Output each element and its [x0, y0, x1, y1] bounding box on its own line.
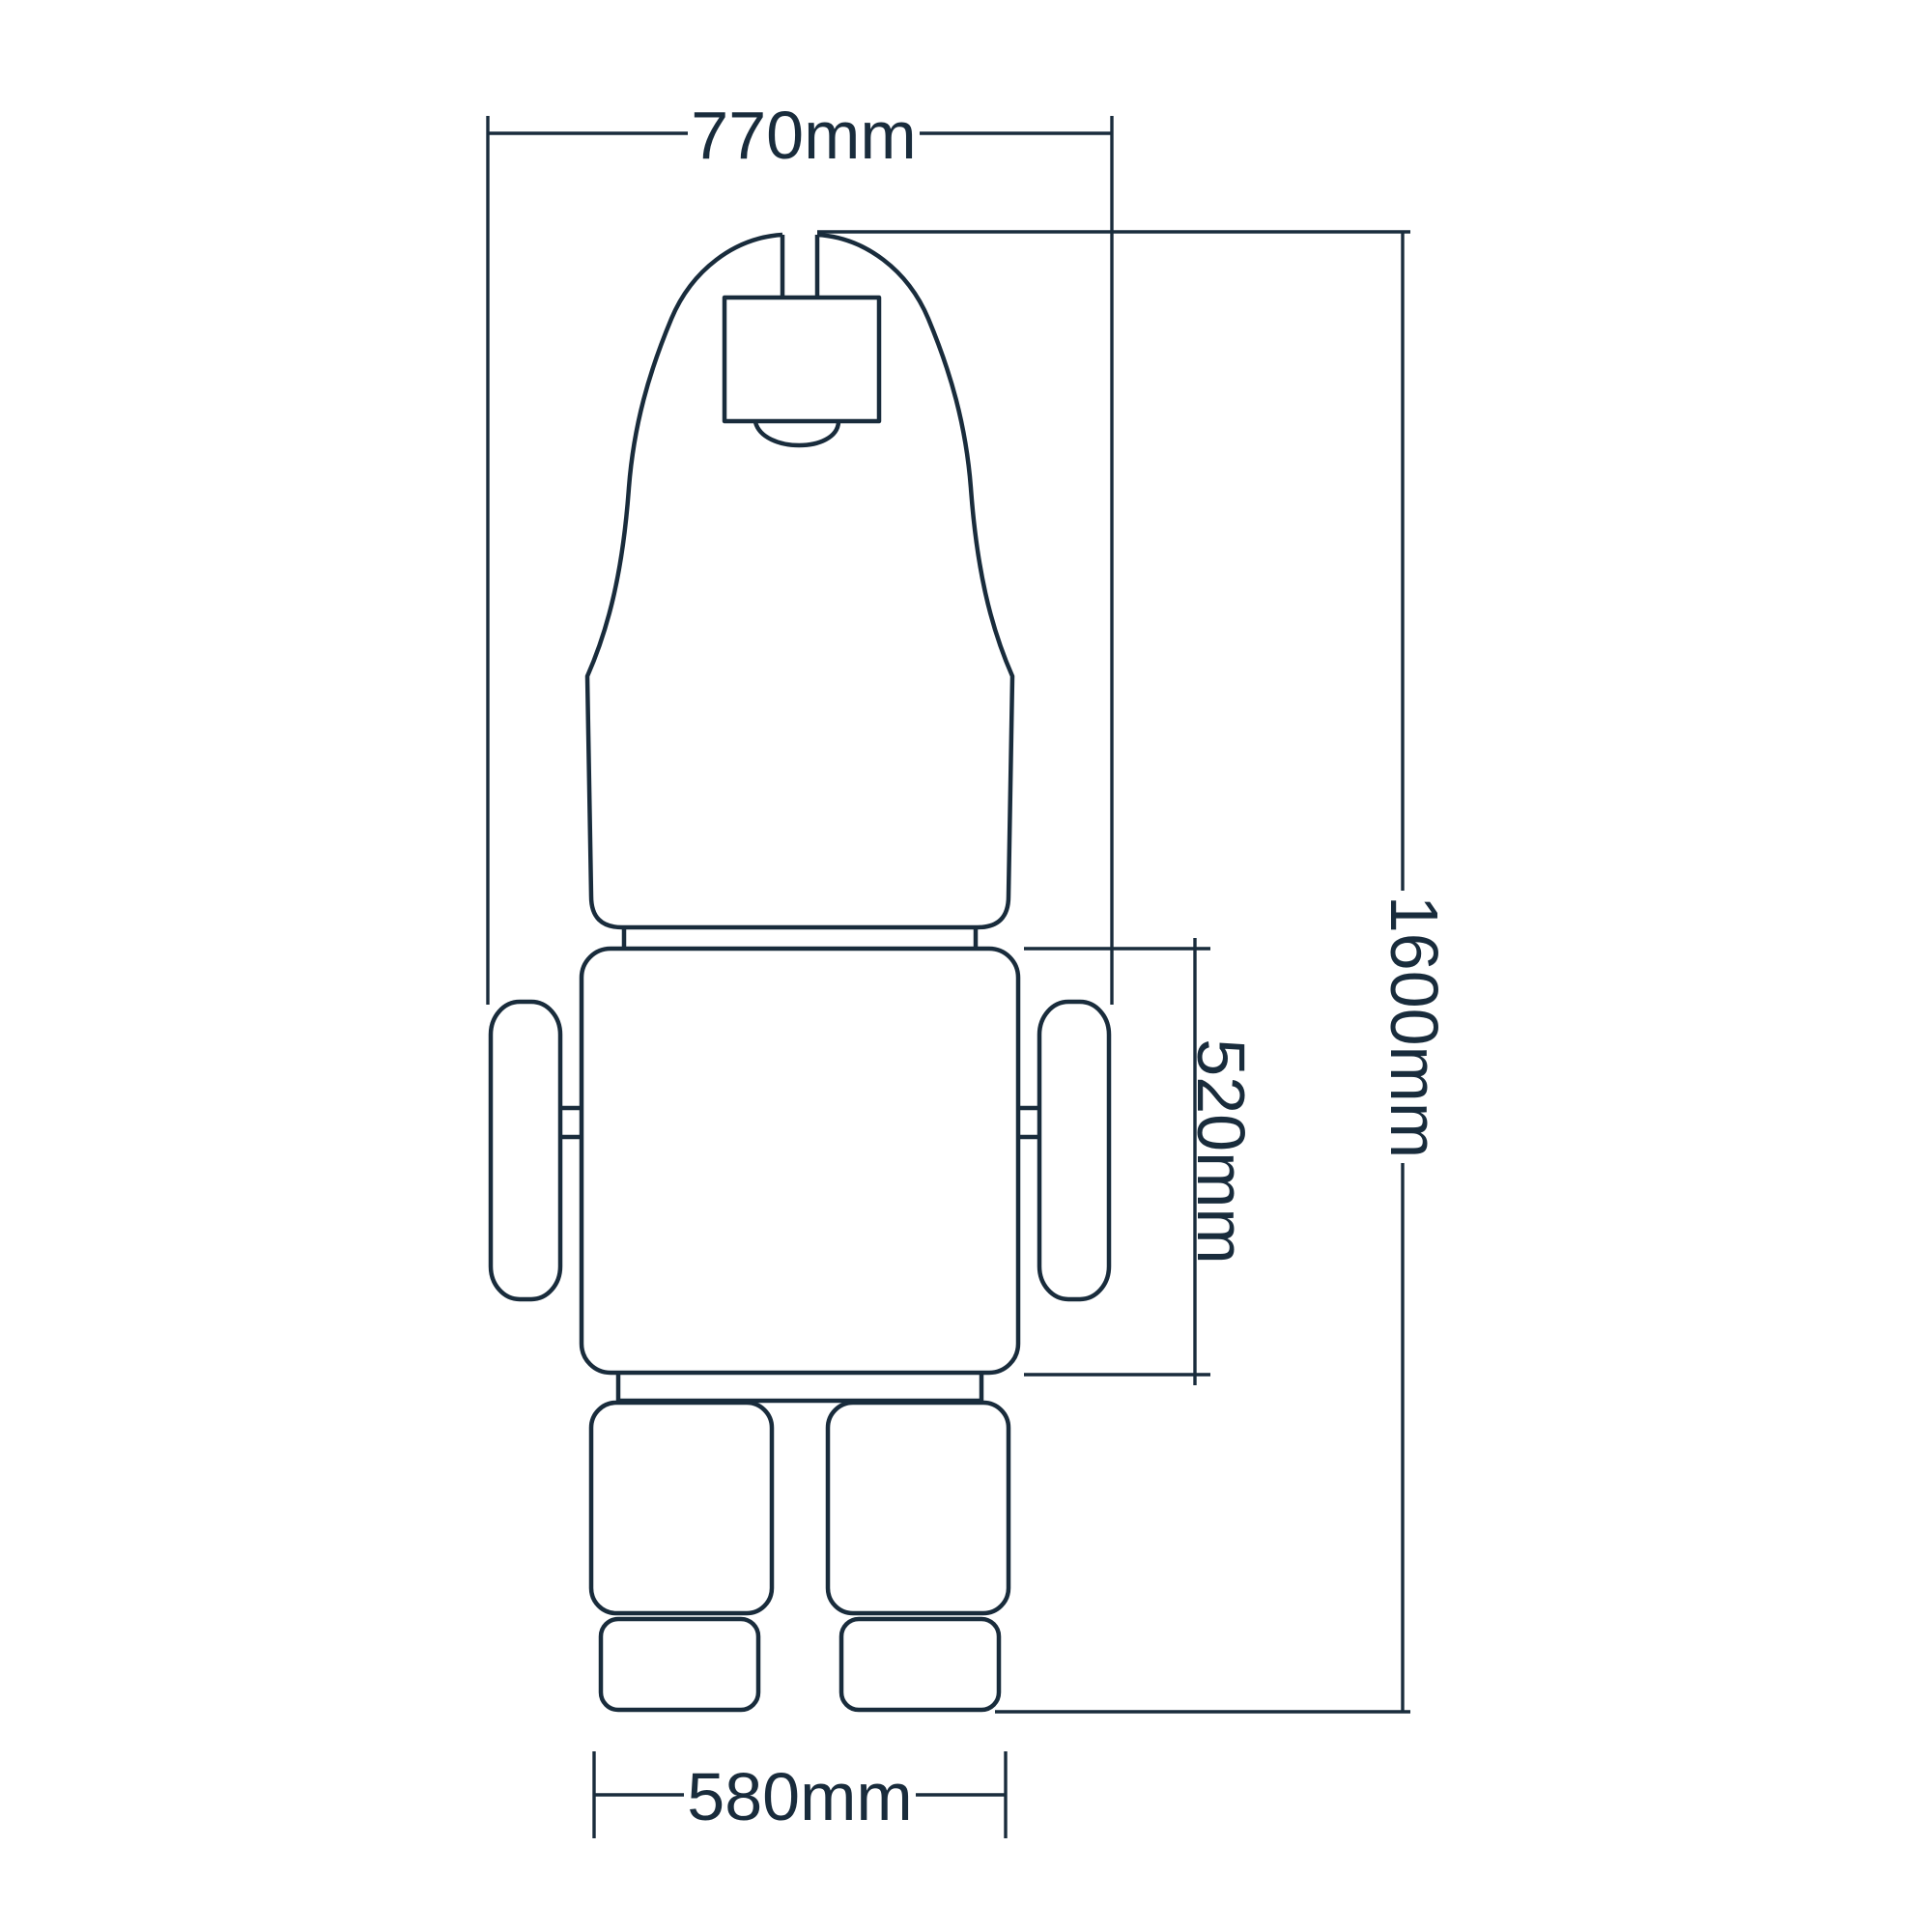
- dimension-overall-length-label: 1600mm: [1377, 895, 1452, 1158]
- left-footrest: [601, 1619, 758, 1710]
- diagram-canvas: 770mm 1600mm 520mm 580mm: [0, 0, 1932, 1932]
- right-footrest: [841, 1619, 999, 1710]
- dimension-seat-length-label: 520mm: [1183, 1038, 1259, 1264]
- seat: [582, 949, 1018, 1373]
- dimension-footrest-width: 580mm: [594, 1751, 1006, 1838]
- seat-legrest-connector: [618, 1375, 981, 1401]
- left-armrest-connector: [560, 1108, 582, 1137]
- chair-top-view: [491, 235, 1109, 1710]
- left-legrest: [591, 1403, 772, 1613]
- headrest-pad: [724, 298, 879, 421]
- left-armrest: [491, 1002, 560, 1299]
- right-armrest: [1039, 1002, 1109, 1299]
- chair-dimension-diagram: 770mm 1600mm 520mm 580mm: [0, 0, 1932, 1932]
- dimension-overall-width-label: 770mm: [691, 98, 916, 173]
- right-armrest-connector: [1018, 1108, 1039, 1137]
- backrest-seat-connector: [624, 929, 976, 948]
- dimension-footrest-width-label: 580mm: [687, 1759, 912, 1834]
- right-legrest: [828, 1403, 1009, 1613]
